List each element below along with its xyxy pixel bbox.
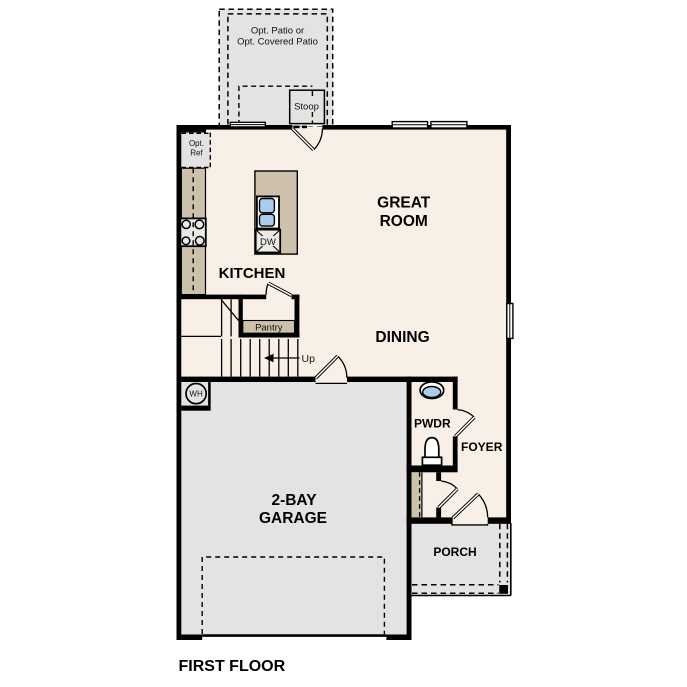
svg-text:PWDR: PWDR [414,417,451,431]
svg-text:WH: WH [189,390,203,399]
svg-text:Stoop: Stoop [294,102,319,113]
svg-text:Opt. Covered Patio: Opt. Covered Patio [237,37,318,48]
svg-text:GARAGE: GARAGE [259,510,327,527]
svg-text:DW: DW [260,237,276,248]
svg-text:Opt. Patio or: Opt. Patio or [251,26,304,37]
svg-text:DINING: DINING [375,329,429,346]
svg-text:PORCH: PORCH [433,545,476,559]
svg-text:Opt.: Opt. [189,139,204,148]
svg-text:KITCHEN: KITCHEN [219,265,286,282]
svg-text:Pantry: Pantry [255,323,283,334]
svg-text:GREAT: GREAT [377,195,431,212]
svg-text:2-BAY: 2-BAY [271,492,317,509]
svg-text:Ref: Ref [190,149,203,158]
svg-text:ROOM: ROOM [380,213,428,230]
svg-text:FOYER: FOYER [461,440,503,454]
svg-text:Up: Up [302,353,316,365]
svg-text:FIRST FLOOR: FIRST FLOOR [179,658,286,675]
